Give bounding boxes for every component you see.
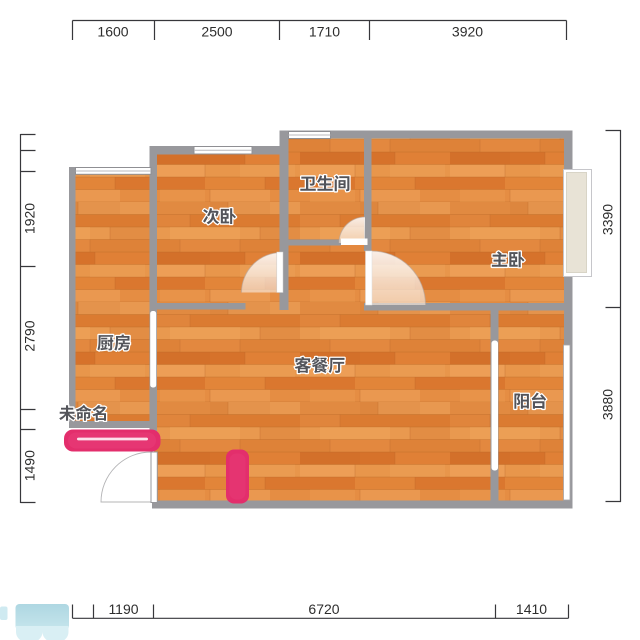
svg-text:1490: 1490 — [22, 450, 38, 481]
svg-text:1410: 1410 — [516, 601, 547, 617]
svg-text:2500: 2500 — [201, 23, 232, 39]
svg-text:6720: 6720 — [308, 601, 339, 617]
svg-text:3920: 3920 — [452, 23, 483, 39]
svg-text:1600: 1600 — [97, 23, 128, 39]
svg-text:2790: 2790 — [22, 320, 38, 351]
svg-text:3390: 3390 — [600, 204, 616, 235]
svg-text:1920: 1920 — [22, 203, 38, 234]
svg-text:1710: 1710 — [309, 23, 340, 39]
svg-text:3880: 3880 — [600, 389, 616, 420]
svg-text:1190: 1190 — [108, 601, 138, 617]
